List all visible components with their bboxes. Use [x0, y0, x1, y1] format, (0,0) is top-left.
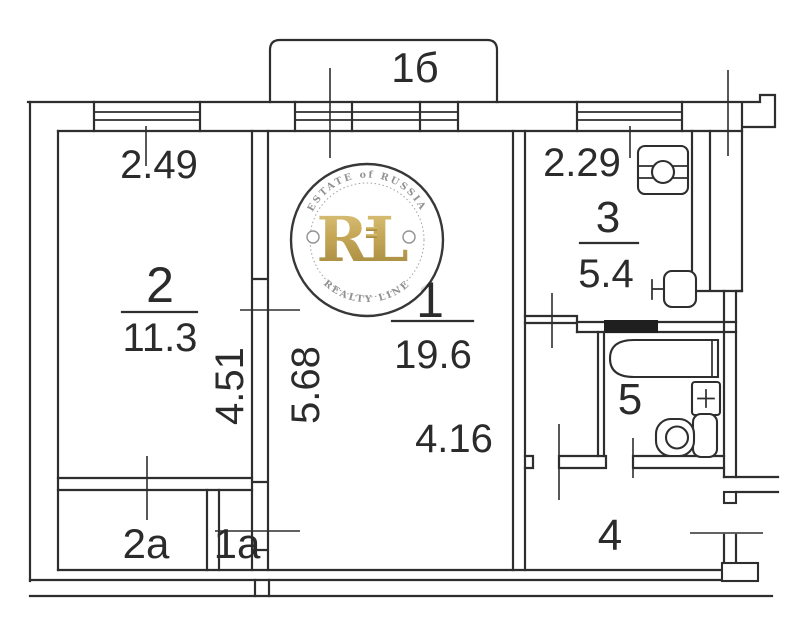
kitchen-sink-icon	[652, 271, 696, 307]
floor-plan-page: 1б 2.49 2 11.3 4.51 5.68 1 19.6 4.16 2.2…	[0, 0, 800, 627]
bathroom-number: 5	[618, 375, 642, 424]
windows	[94, 102, 682, 131]
dim-kitchen-width: 2.29	[543, 141, 621, 185]
wall-black-segment	[604, 320, 658, 333]
wall-below-entrance	[724, 535, 736, 563]
wall-room2-room1	[252, 131, 268, 570]
wall-room1-kitchen	[513, 131, 525, 570]
room1-area: 19.6	[394, 333, 472, 377]
closet-2a-label: 2a	[123, 520, 170, 567]
stove-icon	[638, 146, 688, 194]
balcony-label: 1б	[391, 44, 438, 91]
dim-room1-depth: 5.68	[284, 346, 328, 424]
bottom-right-block	[722, 563, 758, 581]
watermark-bar-1	[366, 227, 377, 231]
window-glass-lines	[94, 112, 682, 120]
room2-number: 2	[146, 257, 174, 313]
dim-room2-depth: 4.51	[208, 347, 252, 425]
wall-closet-top	[58, 478, 252, 490]
wall-bottom-connector	[255, 580, 269, 596]
balcony-outline	[270, 40, 497, 102]
window-mullions	[94, 102, 682, 131]
south-wall	[30, 570, 722, 580]
watermark-initials: RL	[316, 203, 408, 276]
right-wall-mid	[724, 291, 742, 477]
watermark-bar-2	[366, 234, 377, 238]
washbasin-icon	[692, 382, 720, 415]
right-wall-upper	[692, 131, 741, 291]
wall-bath-left	[598, 332, 604, 456]
wall-kitchen-bottom	[525, 316, 577, 332]
dim-room1-width: 4.16	[415, 417, 493, 461]
wall-hall-top	[525, 456, 724, 468]
bathtub-icon	[610, 340, 718, 377]
corridor-lines	[724, 477, 778, 492]
hall-number: 4	[598, 511, 622, 560]
entrance-area	[690, 477, 778, 581]
balcony	[270, 40, 497, 102]
room2-area: 11.3	[123, 316, 198, 360]
left-wall	[30, 102, 58, 581]
kitchen-number: 3	[596, 193, 620, 242]
kitchen-area: 5.4	[578, 252, 634, 296]
floor-plan-drawing: 1б 2.49 2 11.3 4.51 5.68 1 19.6 4.16 2.2…	[0, 0, 800, 627]
watermark-stamp: ESTATE of RUSSIA RL REALTY LINE	[291, 164, 443, 316]
toilet-icon	[656, 414, 717, 457]
dim-room2-width: 2.49	[120, 143, 198, 187]
door-jamb-block	[724, 492, 736, 503]
closet-1a-label: 1a	[214, 520, 261, 567]
